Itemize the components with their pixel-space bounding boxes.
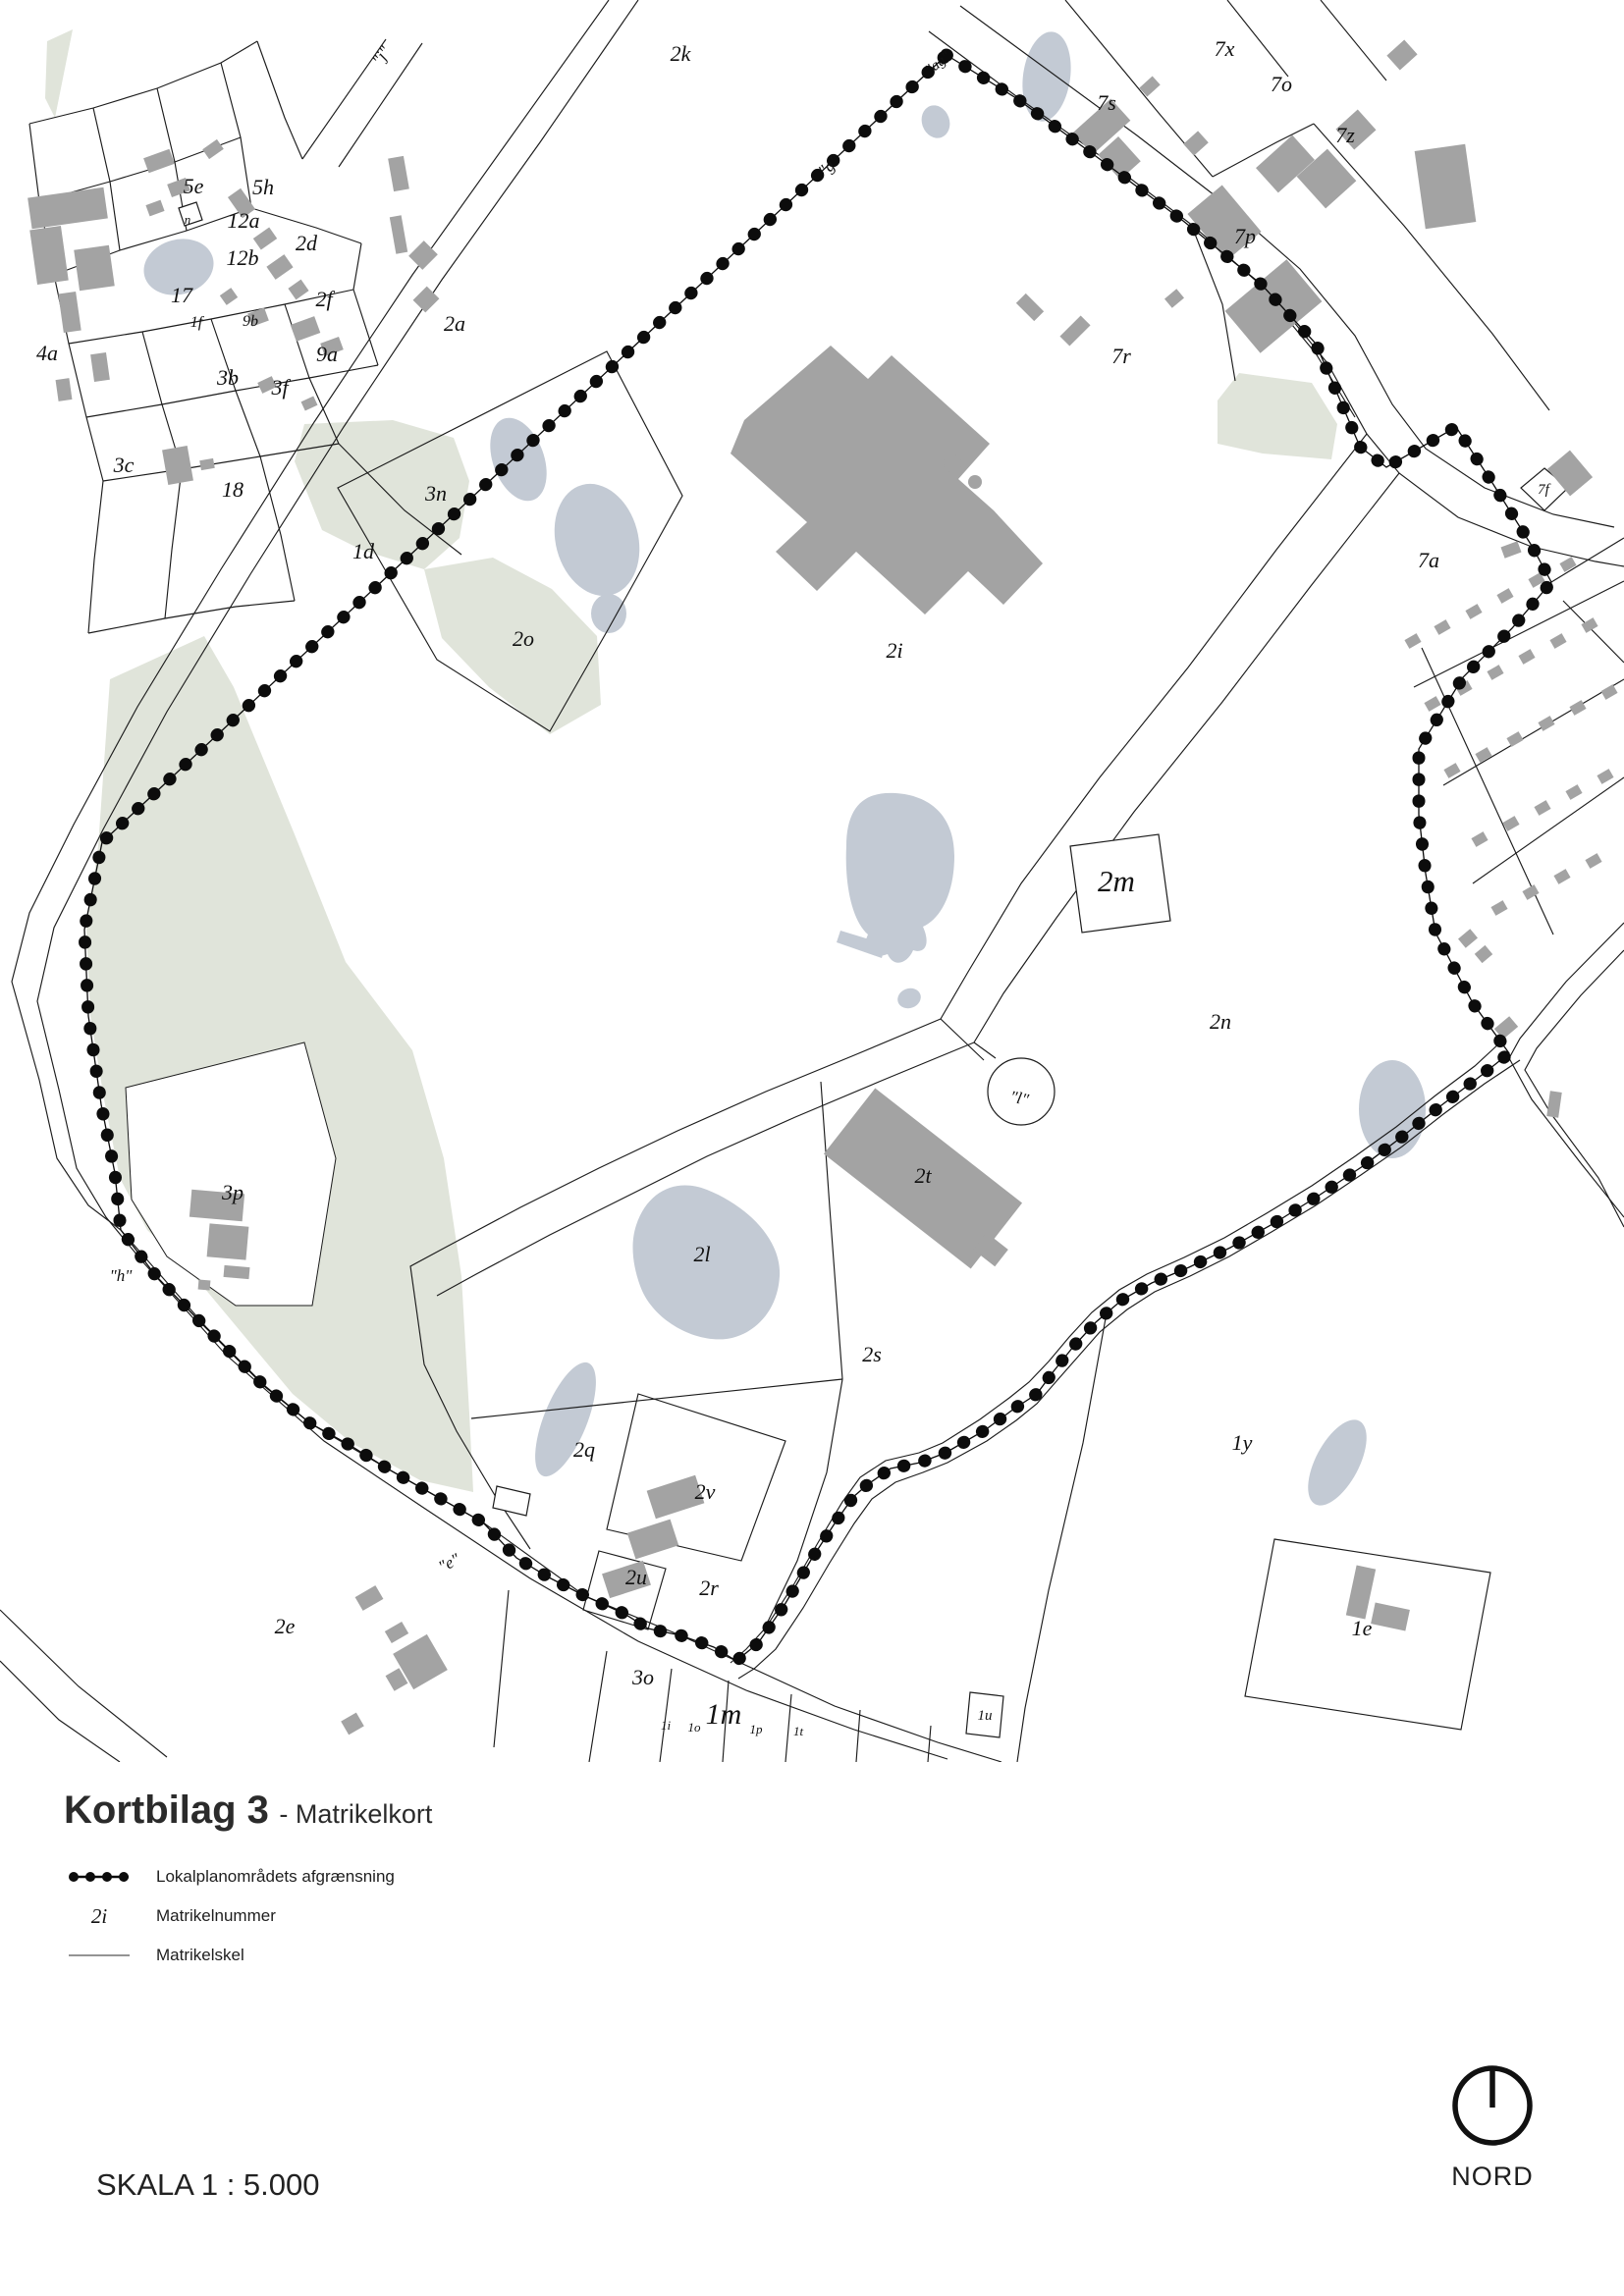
north-arrow-icon: [1445, 2056, 1540, 2151]
parcel-label-2q: 2q: [573, 1437, 595, 1462]
legend-label-boundary: Lokalplanområdets afgrænsning: [156, 1867, 395, 1887]
parcel-label-1e: 1e: [1352, 1616, 1373, 1640]
legend-label-parcel-line: Matrikelskel: [156, 1946, 244, 1965]
local-plan-boundary-dots: [84, 55, 1551, 1661]
matrikelkort-map: 2k5e5h12a12b2d2a17n1f9b2f9a4a3b3f3c183n1…: [0, 0, 1624, 1762]
legend-row-parcel-line: Matrikelskel: [64, 1936, 395, 1975]
parcel-label-7z: 7z: [1335, 123, 1355, 147]
parcel-label-3c: 3c: [113, 453, 135, 477]
map-title: Kortbilag 3 - Matrikelkort: [64, 1789, 432, 1833]
map-title-sub: - Matrikelkort: [279, 1799, 432, 1829]
parcel-label-1t: 1t: [793, 1724, 804, 1738]
legend: Lokalplanområdets afgrænsning 2i Matrike…: [64, 1857, 395, 1975]
road-letter-label-j: "j": [368, 42, 395, 69]
legend-row-boundary: Lokalplanområdets afgrænsning: [64, 1857, 395, 1896]
parcel-label-1f: 1f: [190, 314, 205, 331]
parcel-label-1y: 1y: [1232, 1430, 1253, 1455]
parcel-label-3o: 3o: [631, 1665, 654, 1689]
parcel-label-n: n: [185, 212, 191, 227]
parcel-label-3n: 3n: [424, 481, 447, 506]
parcel-label-2d: 2d: [296, 231, 318, 255]
parcel-label-9a: 9a: [316, 342, 338, 366]
parcel-label-12a: 12a: [228, 208, 260, 233]
parcel-line-icon: [64, 1952, 135, 1958]
parcel-label-2e: 2e: [275, 1614, 296, 1638]
parcel-label-7a: 7a: [1418, 548, 1439, 572]
parcel-label-2s: 2s: [862, 1342, 882, 1366]
north-label: NORD: [1429, 2162, 1556, 2192]
parcel-label-5h: 5h: [252, 175, 274, 199]
legend-label-parcel-number: Matrikelnummer: [156, 1906, 276, 1926]
parcel-label-2f: 2f: [315, 287, 335, 311]
parcel-label-2i: 2i: [886, 638, 902, 663]
parcel-label-2u: 2u: [625, 1565, 647, 1589]
map-area: 2k5e5h12a12b2d2a17n1f9b2f9a4a3b3f3c183n1…: [0, 0, 1624, 1762]
parcel-label-2a: 2a: [444, 311, 465, 336]
map-title-main: Kortbilag 3: [64, 1789, 269, 1832]
parcel-label-1p: 1p: [750, 1722, 764, 1736]
parcel-label-1u: 1u: [978, 1708, 993, 1724]
parcel-label-1o: 1o: [688, 1720, 702, 1735]
parcel-label-7x: 7x: [1215, 36, 1235, 61]
parcel-label-3p: 3p: [221, 1180, 244, 1204]
parcel-number-icon: 2i: [64, 1904, 135, 1929]
parcel-label-12b: 12b: [227, 245, 259, 270]
parcel-label-7p: 7p: [1234, 224, 1256, 248]
parcel-label-2v: 2v: [695, 1479, 716, 1504]
parcel-label-1d: 1d: [352, 539, 375, 563]
parcel-label-2t: 2t: [914, 1163, 932, 1188]
parcel-label-7f: 7f: [1538, 482, 1551, 498]
parcel-label-2n: 2n: [1210, 1009, 1231, 1034]
road-letter-label-e: "e": [435, 1549, 463, 1575]
road-letter-label-h: "h": [110, 1266, 134, 1285]
parcel-label-5e: 5e: [184, 174, 204, 198]
parcel-label-2o: 2o: [513, 626, 534, 651]
map-sheet: 2k5e5h12a12b2d2a17n1f9b2f9a4a3b3f3c183n1…: [0, 0, 1624, 2296]
parcel-label-9b: 9b: [243, 313, 258, 330]
parcel-label-1i: 1i: [661, 1718, 672, 1733]
parcel-label-1m: 1m: [706, 1698, 742, 1731]
parcel-label-7o: 7o: [1271, 72, 1292, 96]
parcel-label-2m: 2m: [1098, 864, 1135, 898]
scale-text: SKALA 1 : 5.000: [96, 2167, 320, 2203]
dotted-boundary-icon: [64, 1870, 135, 1884]
parcel-label-17: 17: [171, 283, 193, 307]
parcel-label-2r: 2r: [699, 1575, 719, 1600]
parcel-label-4a: 4a: [36, 341, 58, 365]
north-indicator: NORD: [1429, 2056, 1556, 2192]
parcel-label-7r: 7r: [1111, 344, 1131, 368]
legend-row-parcel-number: 2i Matrikelnummer: [64, 1896, 395, 1936]
parcel-label-2k: 2k: [671, 41, 692, 66]
parcel-label-2l: 2l: [693, 1242, 710, 1266]
parcel-label-3f: 3f: [270, 375, 291, 400]
parcel-label-3b: 3b: [216, 365, 239, 390]
parcel-label-18: 18: [222, 477, 244, 502]
parcel-label-7s: 7s: [1097, 90, 1116, 115]
